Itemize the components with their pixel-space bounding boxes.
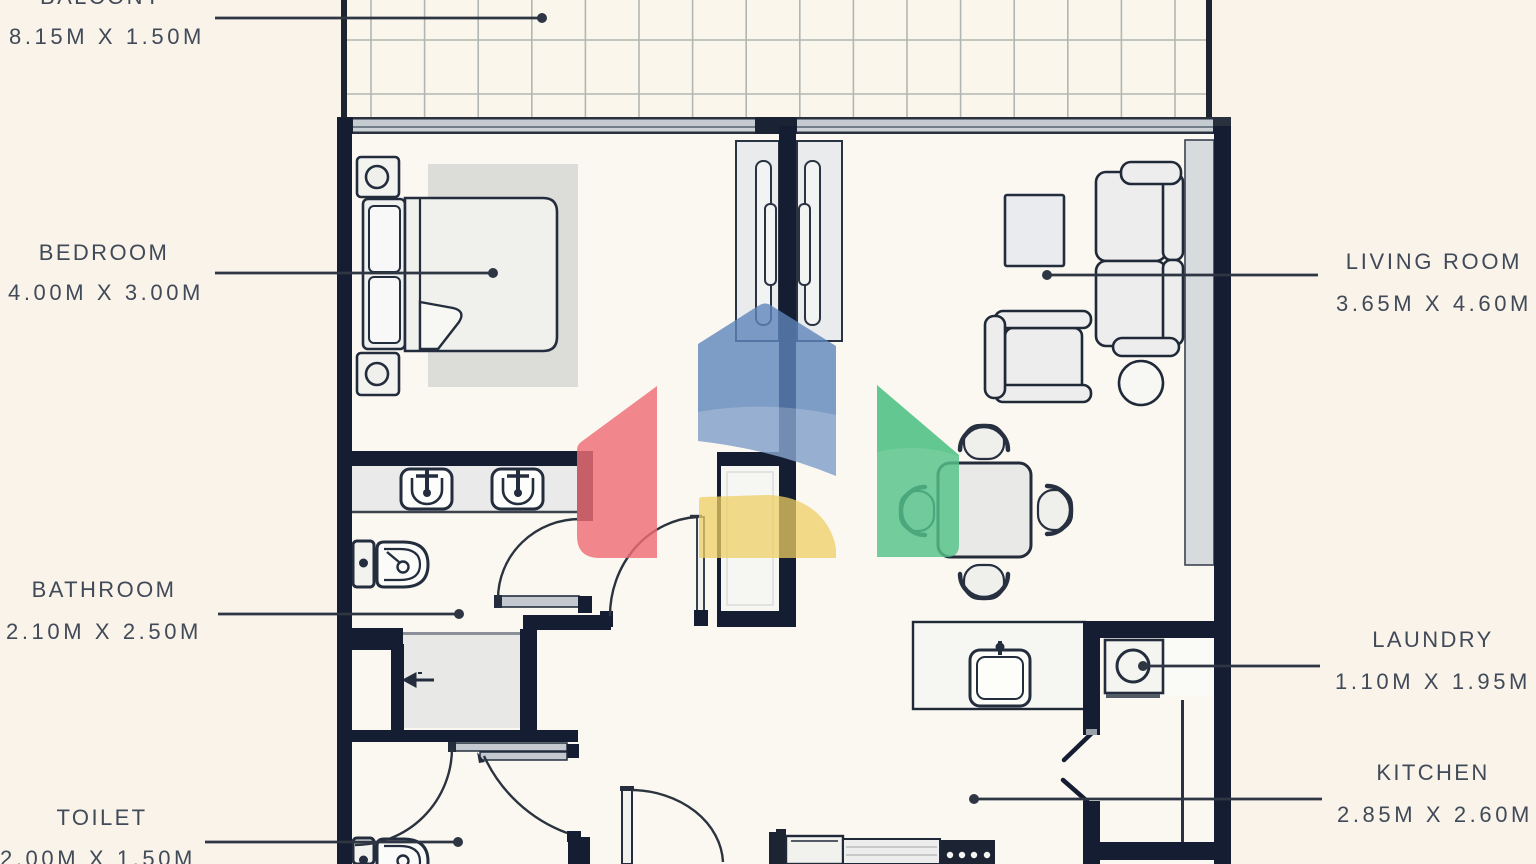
svg-text:BEDROOM: BEDROOM	[39, 240, 169, 265]
svg-text:4.00M X 3.00M: 4.00M X 3.00M	[8, 280, 204, 305]
svg-text:2.85M X 2.60M: 2.85M X 2.60M	[1337, 802, 1533, 827]
svg-text:LAUNDRY: LAUNDRY	[1372, 627, 1494, 652]
svg-text:KITCHEN: KITCHEN	[1376, 760, 1489, 785]
svg-text:8.15M X 1.50M: 8.15M X 1.50M	[9, 24, 205, 49]
svg-text:3.65M X 4.60M: 3.65M X 4.60M	[1336, 291, 1532, 316]
svg-text:LIVING ROOM: LIVING ROOM	[1346, 249, 1522, 274]
svg-text:2.00M X 1.50M: 2.00M X 1.50M	[0, 846, 196, 864]
svg-text:BALCONY: BALCONY	[40, 0, 162, 9]
svg-text:TOILET: TOILET	[56, 805, 147, 830]
svg-text:1.10M X 1.95M: 1.10M X 1.95M	[1335, 669, 1531, 694]
svg-text:BATHROOM: BATHROOM	[32, 577, 177, 602]
svg-text:2.10M X 2.50M: 2.10M X 2.50M	[6, 619, 202, 644]
